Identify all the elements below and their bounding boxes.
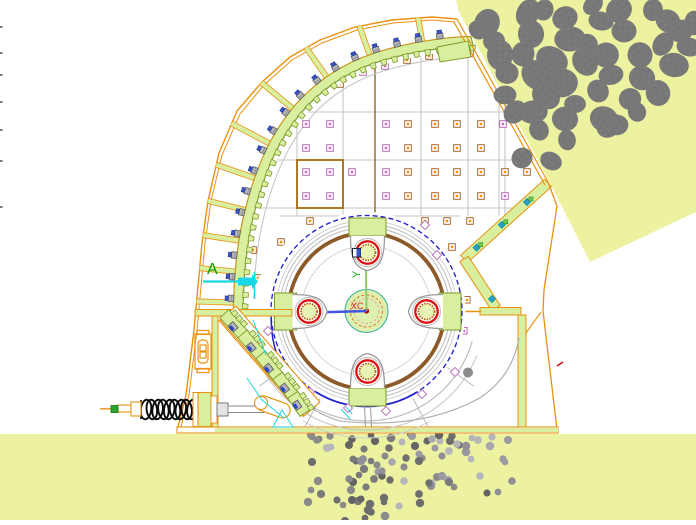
svg-text:XC: XC: [351, 301, 364, 311]
svg-text:A: A: [207, 261, 218, 278]
svg-text:Y: Y: [351, 270, 363, 278]
